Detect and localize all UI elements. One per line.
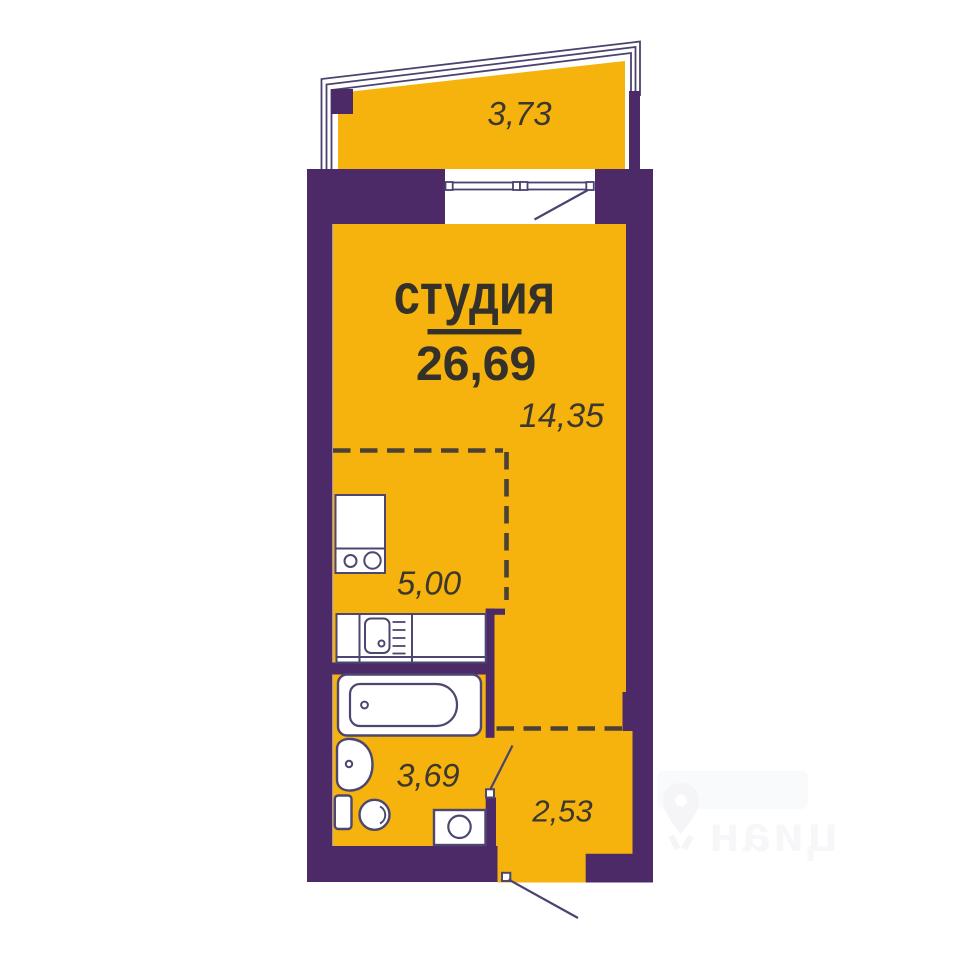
svg-text:студия: студия [394, 264, 555, 327]
svg-text:3,73: 3,73 [487, 95, 552, 132]
svg-text:2,53: 2,53 [531, 794, 592, 829]
svg-text:14,35: 14,35 [519, 397, 604, 435]
svg-text:5,00: 5,00 [397, 565, 462, 602]
svg-text:26,69: 26,69 [416, 337, 536, 391]
svg-text:3,69: 3,69 [396, 758, 459, 794]
svg-text:циан: циан [706, 806, 837, 862]
